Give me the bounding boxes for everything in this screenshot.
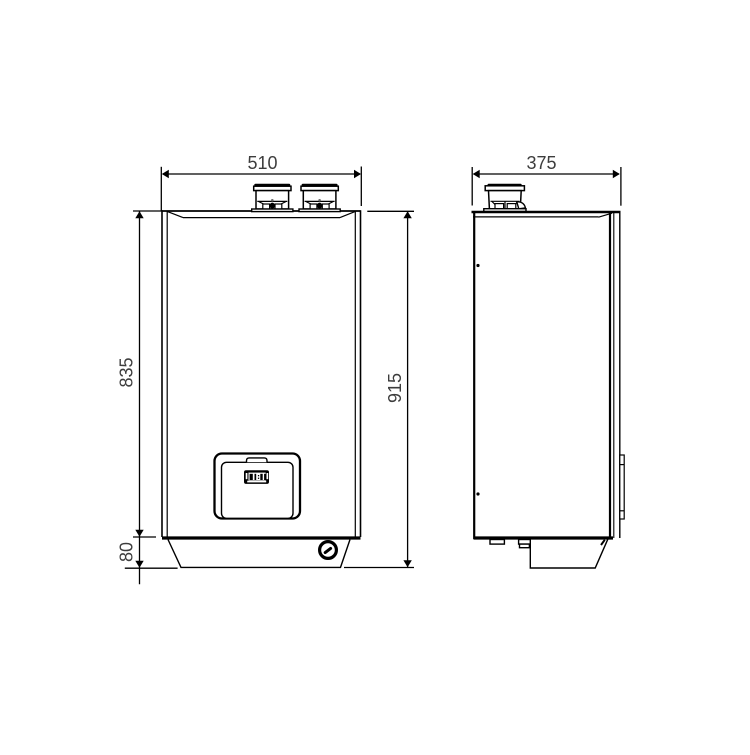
svg-text:835: 835 xyxy=(117,357,137,387)
svg-text:510: 510 xyxy=(247,153,277,173)
svg-text:80: 80 xyxy=(117,542,137,562)
svg-text:915: 915 xyxy=(385,373,405,403)
svg-text:375: 375 xyxy=(526,153,556,173)
